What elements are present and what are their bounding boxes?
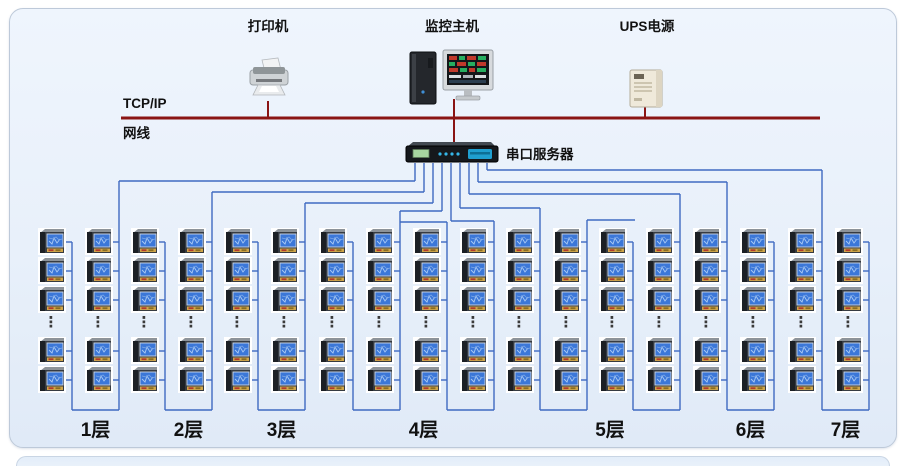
power-meter-icon [38, 286, 66, 313]
power-meter-icon [646, 257, 674, 284]
power-meter-icon [740, 257, 768, 284]
power-meter-icon [460, 228, 488, 255]
power-meter-icon [131, 286, 159, 313]
floor-label: 6层 [736, 419, 766, 441]
power-meter-icon [224, 286, 252, 313]
power-meter-icon [178, 366, 206, 393]
column-ellipsis: ⋮ [746, 314, 761, 331]
ups-icon [630, 70, 662, 107]
power-meter-icon [366, 228, 394, 255]
power-meter-icon [271, 257, 299, 284]
floor-label: 2层 [174, 419, 204, 441]
power-meter-icon [599, 337, 627, 364]
power-meter-icon [319, 286, 347, 313]
floor-label: 5层 [595, 419, 625, 441]
power-meter-icon [506, 366, 534, 393]
column-ellipsis: ⋮ [184, 314, 199, 331]
column-ellipsis: ⋮ [137, 314, 152, 331]
power-meter-icon [319, 366, 347, 393]
power-meter-icon [271, 286, 299, 313]
power-meter-icon [788, 228, 816, 255]
column-ellipsis: ⋮ [699, 314, 714, 331]
power-meter-icon [693, 228, 721, 255]
power-meter-icon [413, 257, 441, 284]
power-meter-icon [693, 337, 721, 364]
ups-label: UPS电源 [620, 18, 675, 34]
power-meter-icon [646, 366, 674, 393]
power-meter-icon [646, 286, 674, 313]
power-meter-icon [553, 286, 581, 313]
tcpip-label: TCP/IP [123, 96, 167, 111]
power-meter-icon [85, 337, 113, 364]
power-meter-icon [85, 286, 113, 313]
power-meter-icon [271, 366, 299, 393]
column-ellipsis: ⋮ [372, 314, 387, 331]
power-meter-icon [271, 228, 299, 255]
meter-grid: ⋮⋮⋮⋮⋮⋮⋮⋮⋮⋮⋮⋮⋮⋮⋮⋮⋮⋮ [38, 228, 863, 393]
serial-server-label: 串口服务器 [506, 146, 574, 162]
power-meter-icon [506, 228, 534, 255]
power-meter-icon [178, 257, 206, 284]
power-meter-icon [788, 337, 816, 364]
column-ellipsis: ⋮ [652, 314, 667, 331]
diagram-stage: 打印机 监控主机 UPS电源 TCP/IP 网线 串口服务器 ⋮⋮⋮⋮⋮⋮⋮⋮⋮… [0, 0, 905, 466]
power-meter-icon [835, 337, 863, 364]
power-meter-icon [835, 257, 863, 284]
power-meter-icon [460, 257, 488, 284]
column-ellipsis: ⋮ [230, 314, 245, 331]
power-meter-icon [693, 286, 721, 313]
power-meter-icon [599, 257, 627, 284]
printer-icon [250, 58, 288, 95]
power-meter-icon [506, 286, 534, 313]
power-meter-icon [178, 337, 206, 364]
column-ellipsis: ⋮ [559, 314, 574, 331]
column-ellipsis: ⋮ [277, 314, 292, 331]
column-ellipsis: ⋮ [419, 314, 434, 331]
power-meter-icon [366, 286, 394, 313]
monitor-host-label: 监控主机 [425, 18, 479, 34]
power-meter-icon [788, 366, 816, 393]
power-meter-icon [646, 337, 674, 364]
power-meter-icon [366, 257, 394, 284]
power-meter-icon [319, 337, 347, 364]
column-ellipsis: ⋮ [325, 314, 340, 331]
power-meter-icon [131, 337, 159, 364]
column-ellipsis: ⋮ [466, 314, 481, 331]
power-meter-icon [553, 228, 581, 255]
serial-server-icon [406, 142, 498, 162]
floor-label: 7层 [831, 419, 861, 441]
power-meter-icon [693, 257, 721, 284]
power-meter-icon [224, 257, 252, 284]
monitor-host-icon [410, 50, 493, 104]
power-meter-icon [599, 228, 627, 255]
power-meter-icon [740, 366, 768, 393]
column-ellipsis: ⋮ [841, 314, 856, 331]
power-meter-icon [413, 286, 441, 313]
power-meter-icon [788, 286, 816, 313]
power-meter-icon [366, 337, 394, 364]
power-meter-icon [224, 228, 252, 255]
power-meter-icon [85, 366, 113, 393]
power-meter-icon [506, 337, 534, 364]
power-meter-icon [85, 228, 113, 255]
power-meter-icon [553, 257, 581, 284]
topology-diagram: 打印机 监控主机 UPS电源 TCP/IP 网线 串口服务器 ⋮⋮⋮⋮⋮⋮⋮⋮⋮… [0, 0, 905, 466]
power-meter-icon [131, 228, 159, 255]
power-meter-icon [599, 366, 627, 393]
power-meter-icon [506, 257, 534, 284]
power-meter-icon [413, 337, 441, 364]
power-meter-icon [271, 337, 299, 364]
column-ellipsis: ⋮ [512, 314, 527, 331]
power-meter-icon [413, 228, 441, 255]
power-meter-icon [224, 366, 252, 393]
floor-labels: 1层2层3层4层5层6层7层 [81, 419, 861, 441]
power-meter-icon [178, 286, 206, 313]
floor-label: 3层 [267, 419, 297, 441]
power-meter-icon [646, 228, 674, 255]
power-meter-icon [460, 286, 488, 313]
power-meter-icon [38, 228, 66, 255]
power-meter-icon [460, 366, 488, 393]
power-meter-icon [178, 228, 206, 255]
floor-label: 1层 [81, 419, 111, 441]
power-meter-icon [835, 366, 863, 393]
cable-label: 网线 [123, 125, 150, 141]
power-meter-icon [599, 286, 627, 313]
power-meter-icon [693, 366, 721, 393]
power-meter-icon [131, 366, 159, 393]
power-meter-icon [835, 228, 863, 255]
column-ellipsis: ⋮ [91, 314, 106, 331]
power-meter-icon [460, 337, 488, 364]
column-ellipsis: ⋮ [605, 314, 620, 331]
power-meter-icon [553, 337, 581, 364]
power-meter-icon [38, 337, 66, 364]
power-meter-icon [85, 257, 113, 284]
power-meter-icon [319, 257, 347, 284]
power-meter-icon [740, 337, 768, 364]
power-meter-icon [131, 257, 159, 284]
power-meter-icon [553, 366, 581, 393]
column-ellipsis: ⋮ [44, 314, 59, 331]
column-ellipsis: ⋮ [794, 314, 809, 331]
power-meter-icon [788, 257, 816, 284]
power-meter-icon [38, 366, 66, 393]
power-meter-icon [366, 366, 394, 393]
printer-label: 打印机 [248, 18, 289, 34]
power-meter-icon [38, 257, 66, 284]
power-meter-icon [835, 286, 863, 313]
power-meter-icon [740, 228, 768, 255]
power-meter-icon [740, 286, 768, 313]
power-meter-icon [413, 366, 441, 393]
floor-label: 4层 [409, 419, 439, 441]
power-meter-icon [224, 337, 252, 364]
power-meter-icon [319, 228, 347, 255]
